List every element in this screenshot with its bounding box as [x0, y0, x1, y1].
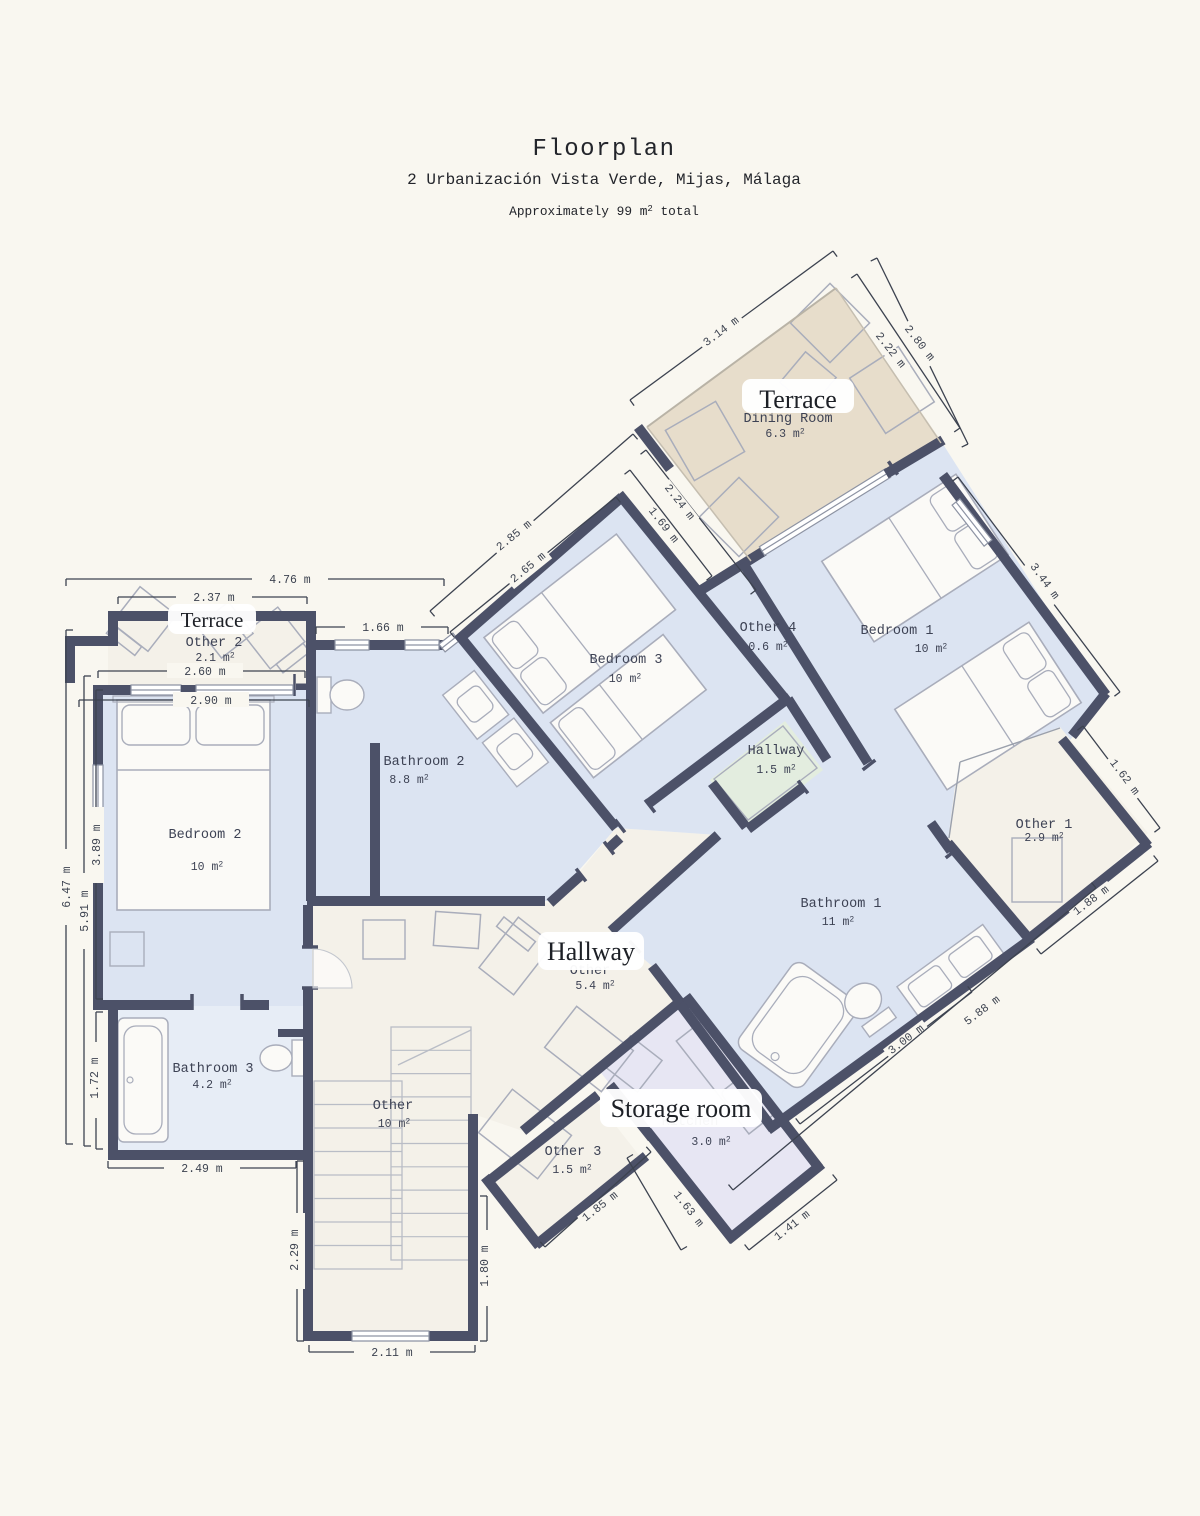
svg-text:Hallway: Hallway — [547, 937, 635, 966]
svg-text:1.66 m: 1.66 m — [362, 622, 404, 635]
svg-text:6.47 m: 6.47 m — [61, 866, 74, 908]
svg-text:6.3 m2: 6.3 m2 — [765, 428, 805, 442]
svg-text:Bathroom 1: Bathroom 1 — [800, 897, 881, 912]
svg-text:0.6 m2: 0.6 m2 — [748, 641, 788, 655]
svg-text:1.80 m: 1.80 m — [479, 1245, 492, 1287]
svg-text:Storage room: Storage room — [611, 1094, 752, 1123]
svg-text:Bathroom 3: Bathroom 3 — [172, 1062, 253, 1077]
svg-text:8.8 m2: 8.8 m2 — [389, 774, 429, 788]
svg-text:Approximately 99 m2 total: Approximately 99 m2 total — [509, 204, 699, 219]
svg-text:Terrace: Terrace — [759, 385, 837, 414]
svg-text:Bedroom 2: Bedroom 2 — [169, 828, 242, 843]
svg-text:1.5 m2: 1.5 m2 — [552, 1164, 592, 1178]
svg-text:2.90 m: 2.90 m — [190, 695, 232, 708]
svg-text:2 Urbanización Vista Verde, Mi: 2 Urbanización Vista Verde, Mijas, Málag… — [407, 171, 801, 189]
svg-text:Other 2: Other 2 — [186, 636, 243, 651]
svg-text:4.2 m2: 4.2 m2 — [192, 1079, 232, 1093]
svg-text:3.89 m: 3.89 m — [91, 824, 104, 866]
svg-text:Other 4: Other 4 — [740, 621, 797, 636]
svg-text:Bedroom 3: Bedroom 3 — [590, 653, 663, 668]
svg-text:Dining Room: Dining Room — [743, 412, 832, 427]
svg-text:Other 1: Other 1 — [1016, 818, 1073, 833]
svg-text:2.49 m: 2.49 m — [181, 1163, 223, 1176]
svg-text:Terrace: Terrace — [181, 608, 244, 632]
svg-text:Other 3: Other 3 — [545, 1145, 602, 1160]
svg-text:2.9 m2: 2.9 m2 — [1024, 832, 1064, 846]
svg-text:Floorplan: Floorplan — [532, 136, 675, 163]
svg-text:3.0 m2: 3.0 m2 — [691, 1136, 731, 1150]
svg-text:2.60 m: 2.60 m — [184, 666, 226, 679]
svg-text:Bathroom 2: Bathroom 2 — [383, 755, 464, 770]
svg-text:2.1 m2: 2.1 m2 — [195, 652, 235, 666]
svg-text:5.4 m2: 5.4 m2 — [575, 980, 615, 994]
svg-text:5.91 m: 5.91 m — [79, 890, 92, 932]
svg-text:1.5 m2: 1.5 m2 — [756, 764, 796, 778]
svg-text:1.72 m: 1.72 m — [89, 1057, 102, 1099]
svg-text:Hallway: Hallway — [748, 744, 805, 759]
svg-text:2.11 m: 2.11 m — [371, 1347, 413, 1360]
svg-text:4.76 m: 4.76 m — [269, 574, 311, 587]
svg-text:Bedroom 1: Bedroom 1 — [861, 624, 934, 639]
svg-text:2.29 m: 2.29 m — [289, 1229, 302, 1271]
svg-text:2.37 m: 2.37 m — [193, 592, 235, 605]
svg-text:Other: Other — [373, 1099, 414, 1114]
